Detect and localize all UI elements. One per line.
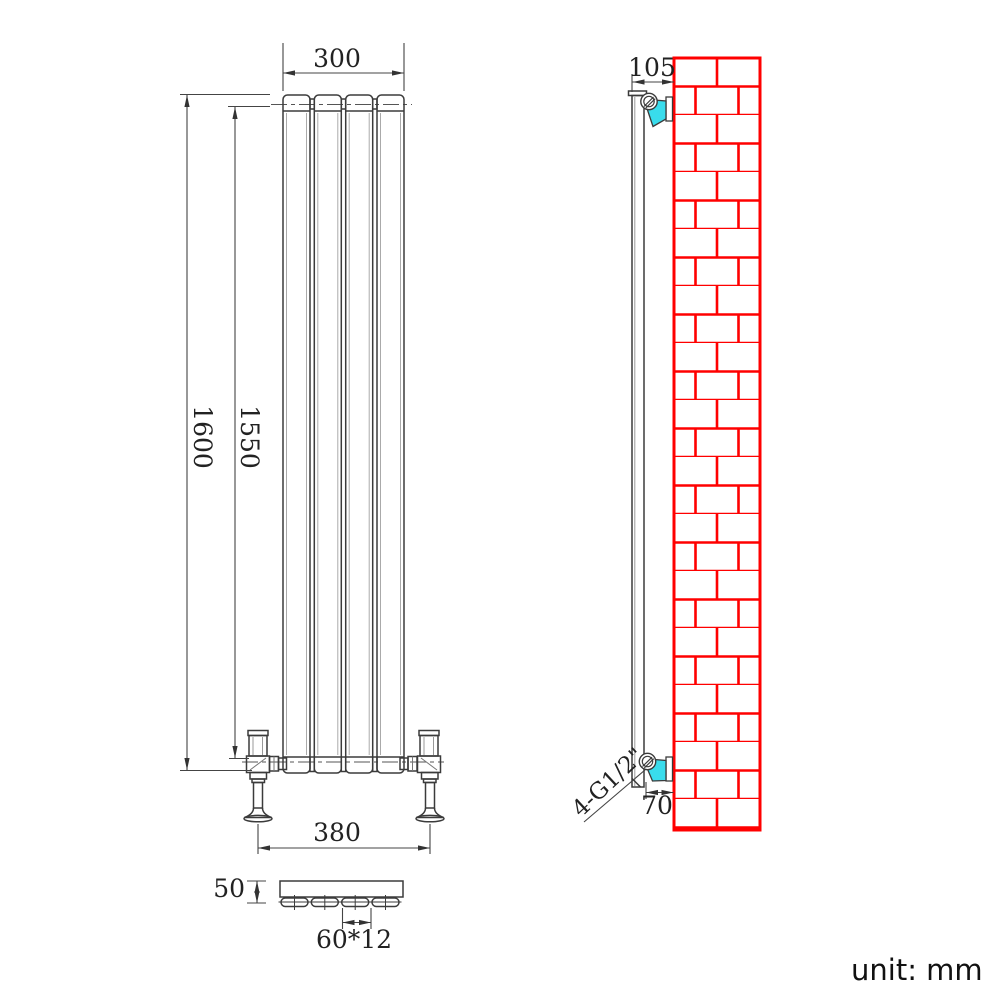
radiator-drawing-page: 300 1600 1550 380 50 60*12 105 70 4-G1/2… <box>0 0 1001 1001</box>
label-380: 380 <box>313 818 361 847</box>
bottom-view <box>279 881 404 910</box>
label-300: 300 <box>313 44 361 73</box>
dim-50 <box>247 881 266 903</box>
radiator-panels <box>283 95 404 773</box>
label-70: 70 <box>641 791 673 820</box>
label-1550: 1550 <box>235 405 264 469</box>
bottom-view-dimensions <box>247 881 371 929</box>
dimension-labels: 300 1600 1550 380 50 60*12 105 70 4-G1/2… <box>188 44 983 987</box>
label-50: 50 <box>213 874 245 903</box>
panel-2 <box>314 95 341 773</box>
back-plate-section <box>280 881 403 897</box>
panel-connectors-bottom <box>310 757 377 772</box>
center-lines <box>242 105 444 763</box>
label-1600: 1600 <box>188 405 217 469</box>
valve-left <box>244 731 287 822</box>
front-view <box>242 95 444 822</box>
valve-right <box>400 731 444 822</box>
label-105: 105 <box>628 53 676 82</box>
side-view <box>629 58 761 830</box>
panel-4 <box>377 95 404 773</box>
label-thread: 4-G1/2" <box>567 743 649 822</box>
panel-1 <box>283 95 310 773</box>
label-60x12: 60*12 <box>316 925 392 954</box>
technical-drawing-canvas: 300 1600 1550 380 50 60*12 105 70 4-G1/2… <box>0 0 1001 1001</box>
bracket-screw-top <box>641 93 657 109</box>
side-view-dimensions <box>584 74 674 822</box>
radiator-side-profile <box>629 91 647 787</box>
panel-3 <box>346 95 373 773</box>
unit-label: unit: mm <box>851 953 983 987</box>
wall-bracket-top <box>641 93 673 126</box>
brick-wall <box>674 58 760 830</box>
